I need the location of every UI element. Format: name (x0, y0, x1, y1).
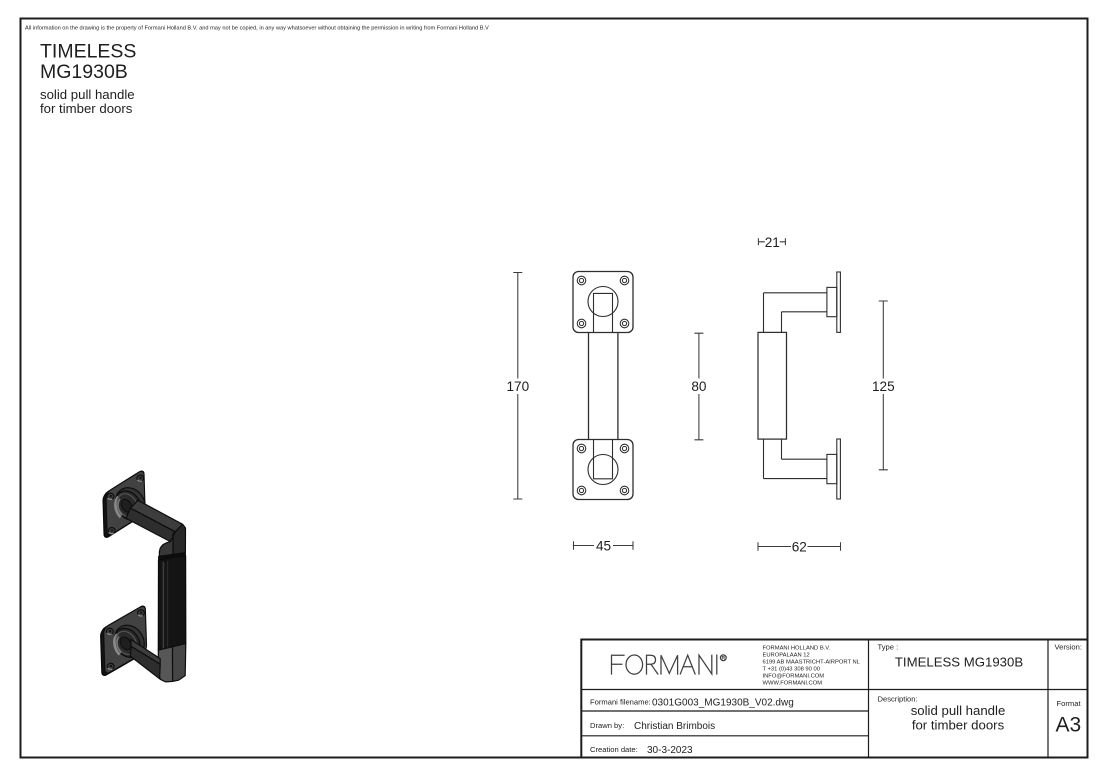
svg-text:Formani filename:: Formani filename: (590, 698, 651, 707)
svg-text:MG1930B: MG1930B (40, 61, 128, 83)
svg-text:INFO@FORMANI.COM: INFO@FORMANI.COM (763, 674, 825, 680)
svg-text:21: 21 (765, 235, 780, 250)
svg-text:62: 62 (792, 539, 807, 554)
svg-text:45: 45 (596, 538, 611, 553)
svg-text:for timber doors: for timber doors (912, 718, 1005, 733)
svg-text:Drawn by:: Drawn by: (590, 721, 624, 730)
svg-text:FORMANI HOLLAND B.V.: FORMANI HOLLAND B.V. (763, 646, 831, 652)
svg-text:A3: A3 (1056, 714, 1082, 737)
svg-text:WWW.FORMANI.COM: WWW.FORMANI.COM (763, 681, 823, 687)
svg-text:Type :: Type : (878, 643, 899, 652)
svg-text:EUROPALAAN 12: EUROPALAAN 12 (763, 653, 810, 659)
svg-text:125: 125 (872, 379, 895, 394)
svg-text:30-3-2023: 30-3-2023 (647, 745, 693, 756)
svg-text:80: 80 (691, 379, 707, 394)
svg-text:TIMELESS: TIMELESS (40, 41, 136, 63)
svg-text:6199 AB MAASTRICHT-AIRPORT NL: 6199 AB MAASTRICHT-AIRPORT NL (763, 660, 861, 666)
svg-text:All information on the drawing: All information on the drawing is the pr… (25, 26, 489, 32)
svg-text:Version:: Version: (1055, 643, 1082, 652)
svg-text:Christian Brimbois: Christian Brimbois (634, 721, 715, 732)
svg-text:170: 170 (506, 379, 529, 394)
svg-text:0301G003_MG1930B_V02.dwg: 0301G003_MG1930B_V02.dwg (652, 698, 794, 709)
svg-text:for timber doors: for timber doors (40, 101, 133, 116)
svg-text:Format: Format (1057, 699, 1082, 708)
svg-text:Creation date:: Creation date: (590, 745, 638, 754)
svg-text:TIMELESS MG1930B: TIMELESS MG1930B (895, 655, 1023, 670)
svg-text:solid pull handle: solid pull handle (911, 703, 1006, 718)
svg-text:solid pull handle: solid pull handle (40, 87, 135, 102)
svg-text:T +31 (0)43 308 90 00: T +31 (0)43 308 90 00 (763, 667, 820, 673)
